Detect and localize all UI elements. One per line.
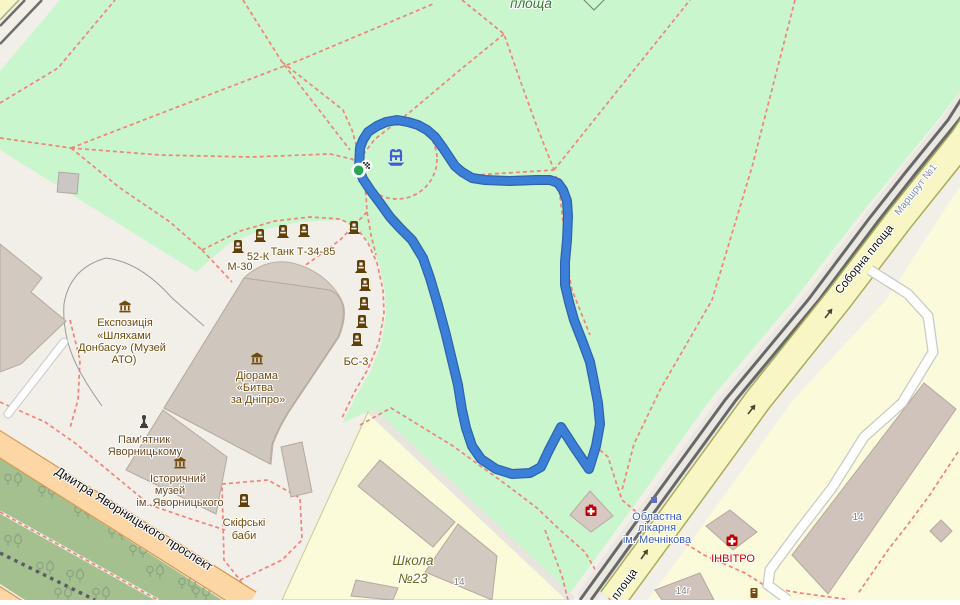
svg-text:Яворницькому: Яворницькому xyxy=(108,446,183,458)
svg-text:лікарня: лікарня xyxy=(638,522,676,534)
svg-text:баби: баби xyxy=(232,530,257,542)
svg-text:Скіфські: Скіфські xyxy=(223,517,266,529)
svg-text:«Шляхами: «Шляхами xyxy=(97,330,151,342)
svg-text:Донбасу» (Музей: Донбасу» (Музей xyxy=(78,342,166,354)
svg-text:Історичний: Історичний xyxy=(150,473,206,485)
svg-text:музей: музей xyxy=(155,485,185,497)
svg-text:Пам’ятник: Пам’ятник xyxy=(118,434,170,446)
svg-text:ім. Яворницького: ім. Яворницького xyxy=(136,497,223,509)
svg-text:Танк Т-34-85: Танк Т-34-85 xyxy=(271,246,336,258)
svg-text:14: 14 xyxy=(852,512,864,523)
svg-text:за Дніпро»: за Дніпро» xyxy=(231,394,286,406)
svg-text:Школа: Школа xyxy=(392,553,434,568)
svg-text:Діорама: Діорама xyxy=(236,370,279,382)
svg-text:площа: площа xyxy=(510,0,552,11)
svg-text:14г: 14г xyxy=(676,586,691,597)
svg-text:№23: №23 xyxy=(398,571,428,586)
svg-text:АТО): АТО) xyxy=(112,354,137,366)
svg-text:52-К: 52-К xyxy=(247,251,270,263)
svg-text:БС-3: БС-3 xyxy=(344,356,369,368)
svg-text:ІНВІТРО: ІНВІТРО xyxy=(711,553,755,565)
svg-text:«Битва: «Битва xyxy=(237,382,274,394)
svg-text:Експозиція: Експозиція xyxy=(97,317,153,329)
svg-text:ім. Мечнікова: ім. Мечнікова xyxy=(623,534,692,546)
svg-text:14: 14 xyxy=(453,577,465,588)
